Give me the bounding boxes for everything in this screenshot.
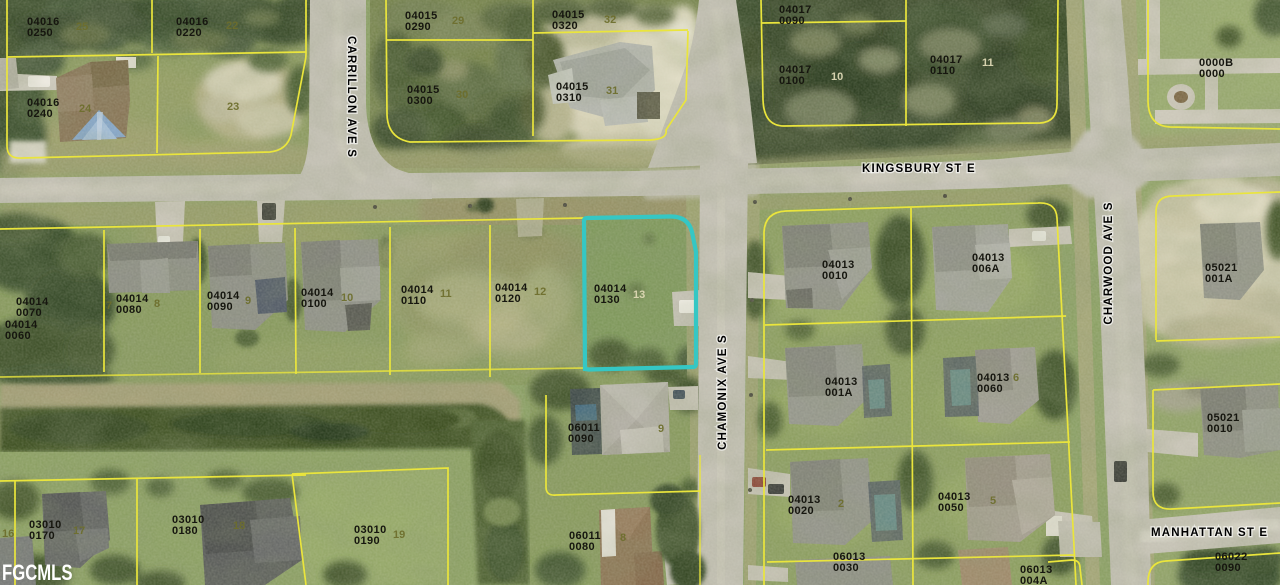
- svg-text:16: 16: [2, 528, 14, 540]
- svg-text:10: 10: [831, 71, 843, 83]
- svg-text:29: 29: [452, 15, 464, 27]
- svg-text:FGCMLS: FGCMLS: [2, 561, 73, 585]
- svg-text:04013006A: 04013006A: [972, 252, 1005, 275]
- svg-text:5: 5: [990, 495, 996, 507]
- svg-text:8: 8: [154, 298, 160, 310]
- svg-text:25: 25: [76, 21, 88, 33]
- svg-text:13: 13: [633, 289, 645, 301]
- svg-text:12: 12: [534, 286, 546, 298]
- svg-text:MANHATTAN ST E: MANHATTAN ST E: [1151, 527, 1268, 539]
- svg-text:2: 2: [838, 498, 844, 510]
- svg-text:04013001A: 04013001A: [825, 376, 858, 399]
- svg-text:8: 8: [620, 532, 626, 544]
- svg-text:KINGSBURY ST E: KINGSBURY ST E: [862, 163, 976, 175]
- svg-text:6: 6: [1013, 372, 1019, 384]
- svg-text:CHAMONIX AVE S: CHAMONIX AVE S: [717, 334, 729, 450]
- svg-text:23: 23: [227, 101, 239, 113]
- svg-text:31: 31: [606, 85, 618, 97]
- svg-text:CHARWOOD AVE S: CHARWOOD AVE S: [1103, 201, 1115, 324]
- svg-text:22: 22: [226, 20, 238, 32]
- svg-text:11: 11: [982, 57, 994, 69]
- svg-text:9: 9: [658, 423, 664, 435]
- svg-text:06013004A: 06013004A: [1020, 564, 1053, 585]
- svg-text:05021001A: 05021001A: [1205, 262, 1238, 285]
- svg-text:9: 9: [245, 295, 251, 307]
- svg-text:24: 24: [79, 103, 92, 115]
- svg-text:19: 19: [393, 529, 405, 541]
- svg-text:CARRILLON AVE S: CARRILLON AVE S: [345, 36, 357, 158]
- svg-text:30: 30: [456, 89, 468, 101]
- svg-text:10: 10: [341, 292, 353, 304]
- svg-text:7: 7: [106, 300, 112, 312]
- svg-text:17: 17: [73, 525, 85, 537]
- svg-text:11: 11: [440, 288, 452, 300]
- svg-text:32: 32: [604, 14, 616, 26]
- svg-text:18: 18: [233, 520, 245, 532]
